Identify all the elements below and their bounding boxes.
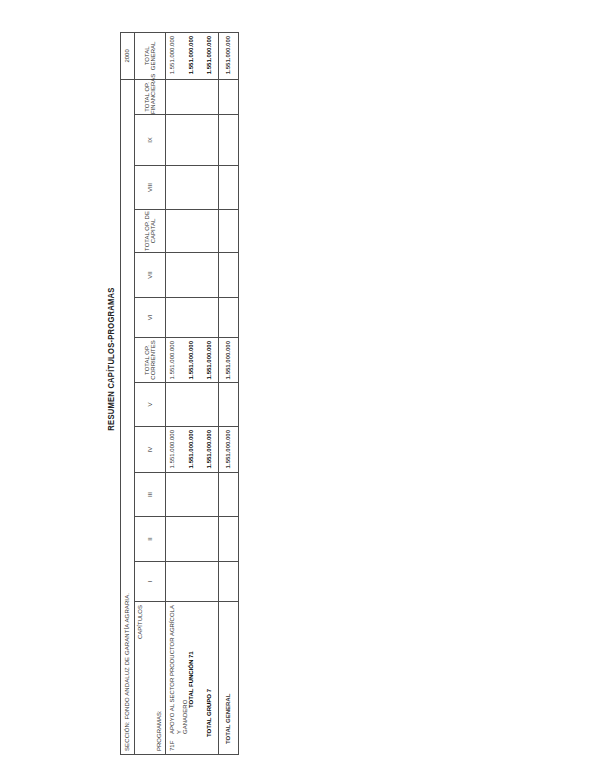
year-label: 2000 bbox=[121, 32, 135, 79]
total-grupo-label: TOTAL GRUPO 7 bbox=[206, 689, 213, 737]
empty-cell bbox=[219, 115, 239, 166]
section-year-row: SECCIÓN: FONDO ANDALUZ DE GARANTÍA AGRAR… bbox=[121, 32, 135, 754]
empty-cell bbox=[166, 383, 219, 427]
empty-cell bbox=[166, 253, 219, 298]
value-71f-iv: 1.551.000.000 bbox=[169, 430, 176, 468]
program-label: APOYO AL SECTOR PRODUCTOR AGRÍCOLA Y GAN… bbox=[169, 602, 189, 734]
empty-cell bbox=[219, 166, 239, 210]
value-funcion-iv: 1.551.000.000 bbox=[188, 430, 195, 468]
value-grupo-corrientes: 1.551.000.000 bbox=[206, 341, 213, 379]
value-funcion-corrientes: 1.551.000.000 bbox=[188, 341, 195, 379]
program-data-row: 71F APOYO AL SECTOR PRODUCTOR AGRÍCOLA Y… bbox=[166, 32, 219, 754]
grand-total-label: TOTAL GENERAL bbox=[219, 602, 239, 755]
empty-cell bbox=[166, 517, 219, 562]
value-grupo-iv: 1.551.000.000 bbox=[206, 430, 213, 468]
empty-cell bbox=[219, 473, 239, 517]
empty-cell bbox=[219, 210, 239, 253]
value-71f-total-general: 1.551.000.000 bbox=[169, 36, 176, 74]
column-header-i: I bbox=[135, 562, 166, 602]
empty-cell bbox=[166, 115, 219, 166]
empty-cell bbox=[166, 473, 219, 517]
value-funcion-total-general: 1.551.000.000 bbox=[188, 36, 195, 74]
column-header-vi: VI bbox=[135, 298, 166, 338]
budget-summary-table: SECCIÓN: FONDO ANDALUZ DE GARANTÍA AGRAR… bbox=[120, 32, 239, 755]
values-cell-total-general: 1.551.000.000 1.551.000.000 1.551.000.00… bbox=[166, 32, 219, 79]
programas-label: PROGRAMAS: bbox=[156, 710, 163, 751]
column-header-iii: III bbox=[135, 473, 166, 517]
grand-total-row: TOTAL GENERAL 1.551.000.000 1.551.000.00… bbox=[219, 32, 239, 754]
document-title: RESUMEN CAPÍTULOS-PROGRAMAS bbox=[105, 287, 116, 430]
program-code: 71F bbox=[169, 741, 176, 751]
section-label: SECCIÓN: FONDO ANDALUZ DE GARANTÍA AGRAR… bbox=[121, 79, 135, 754]
values-cell-total-op-corrientes: 1.551.000.000 1.551.000.000 1.551.000.00… bbox=[166, 338, 219, 383]
grand-total-general: 1.551.000.000 bbox=[219, 32, 239, 79]
value-71f-corrientes: 1.551.000.000 bbox=[169, 341, 176, 379]
empty-cell bbox=[166, 79, 219, 114]
empty-cell bbox=[166, 166, 219, 210]
empty-cell bbox=[166, 298, 219, 338]
grand-total-corrientes: 1.551.000.000 bbox=[219, 338, 239, 383]
column-header-iv: IV bbox=[135, 427, 166, 473]
total-funcion-label: TOTAL FUNCIÓN 71 bbox=[188, 651, 195, 708]
empty-cell bbox=[219, 562, 239, 602]
rotated-sheet: RESUMEN CAPÍTULOS-PROGRAMAS SECCIÓN: FON… bbox=[105, 33, 246, 755]
empty-cell bbox=[219, 298, 239, 338]
column-header-ii: II bbox=[135, 517, 166, 562]
values-cell-iv: 1.551.000.000 1.551.000.000 1.551.000.00… bbox=[166, 427, 219, 473]
grand-total-iv: 1.551.000.000 bbox=[219, 427, 239, 473]
empty-cell bbox=[219, 253, 239, 298]
column-header-total-op-corrientes: TOTAL OP. CORRIENTES bbox=[135, 338, 166, 383]
document-page: RESUMEN CAPÍTULOS-PROGRAMAS SECCIÓN: FON… bbox=[0, 0, 600, 771]
column-header-total-op-financieras: TOTAL OP. FINANCIERAS bbox=[135, 79, 166, 114]
column-header-ix: IX bbox=[135, 115, 166, 166]
column-header-viii: VIII bbox=[135, 166, 166, 210]
column-header-total-general: TOTAL GENERAL bbox=[135, 32, 166, 79]
program-rows-cell: 71F APOYO AL SECTOR PRODUCTOR AGRÍCOLA Y… bbox=[166, 602, 219, 755]
corner-cell: CAPÍTULOS PROGRAMAS: bbox=[135, 602, 166, 755]
value-grupo-total-general: 1.551.000.000 bbox=[206, 36, 213, 74]
empty-cell bbox=[219, 79, 239, 114]
empty-cell bbox=[166, 562, 219, 602]
empty-cell bbox=[219, 383, 239, 427]
column-header-row: CAPÍTULOS PROGRAMAS: I II III IV V TOTAL… bbox=[135, 32, 166, 754]
column-header-total-op-capital: TOTAL OP. DE CAPITAL bbox=[135, 210, 166, 253]
empty-cell bbox=[219, 517, 239, 562]
empty-cell bbox=[166, 210, 219, 253]
capitulos-label: CAPÍTULOS bbox=[137, 605, 144, 639]
column-header-v: V bbox=[135, 383, 166, 427]
column-header-vii: VII bbox=[135, 253, 166, 298]
